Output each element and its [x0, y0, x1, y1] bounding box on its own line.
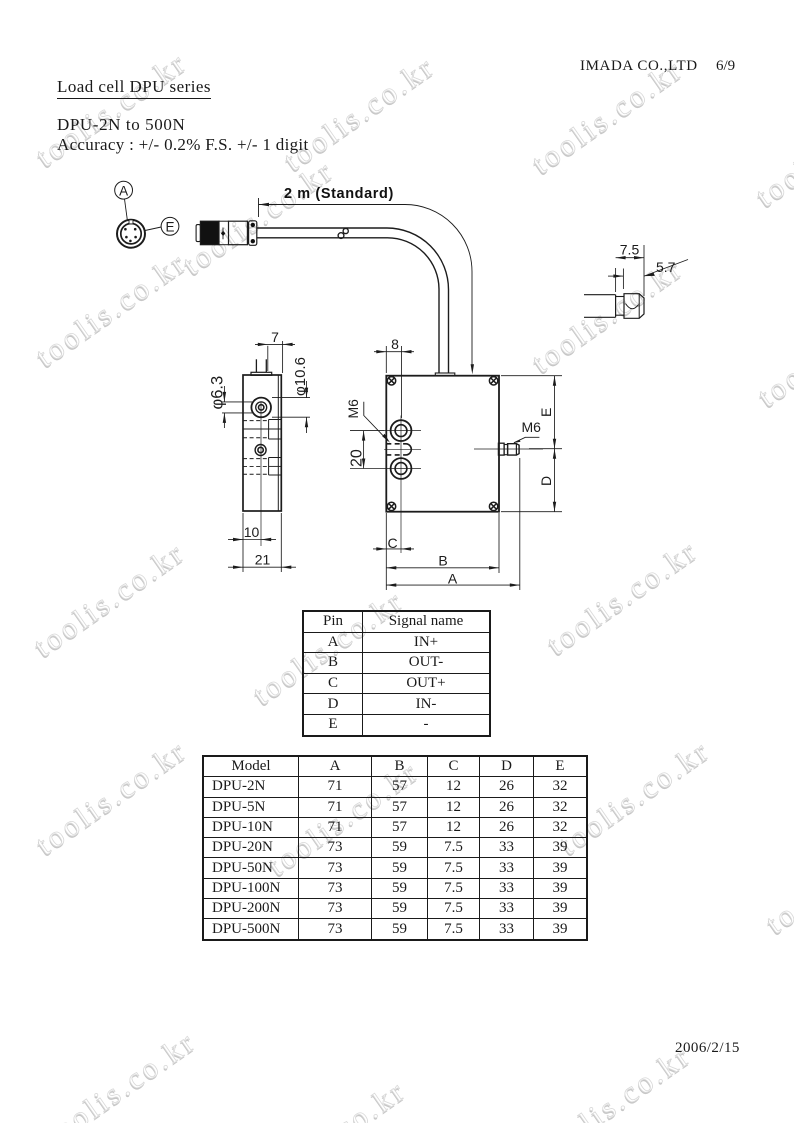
svg-text:toolis.co.kr: toolis.co.kr — [249, 1075, 410, 1123]
svg-text:5.7: 5.7 — [656, 259, 676, 275]
svg-text:20: 20 — [349, 449, 366, 467]
svg-text:7: 7 — [271, 329, 279, 345]
svg-text:D: D — [538, 476, 554, 486]
svg-text:2 m (Standard): 2 m (Standard) — [284, 186, 394, 202]
svg-text:toolis.co.kr: toolis.co.kr — [28, 537, 189, 663]
svg-text:M6: M6 — [522, 419, 542, 435]
svg-text:toolis.co.kr: toolis.co.kr — [177, 155, 338, 281]
svg-text:φ10.6: φ10.6 — [292, 357, 309, 396]
svg-text:toolis.co.kr: toolis.co.kr — [541, 535, 702, 661]
svg-text:A: A — [448, 571, 458, 587]
svg-text:toolis.co.kr: toolis.co.kr — [278, 51, 439, 177]
svg-text:M6: M6 — [345, 399, 361, 419]
svg-text:toolis.co.kr: toolis.co.kr — [750, 87, 794, 213]
svg-text:toolis.co.kr: toolis.co.kr — [30, 247, 191, 373]
svg-text:toolis.co.kr: toolis.co.kr — [752, 287, 794, 413]
svg-text:E: E — [165, 220, 174, 235]
svg-text:C: C — [387, 535, 397, 551]
svg-text:21: 21 — [255, 552, 271, 568]
svg-text:B: B — [438, 553, 447, 569]
svg-text:toolis.co.kr: toolis.co.kr — [30, 735, 191, 861]
svg-text:A: A — [119, 184, 128, 199]
svg-text:10: 10 — [244, 524, 260, 540]
svg-text:φ6.3: φ6.3 — [209, 376, 227, 410]
svg-text:8: 8 — [391, 336, 399, 352]
svg-text:E: E — [538, 408, 554, 417]
svg-text:7.5: 7.5 — [620, 242, 640, 258]
svg-text:toolis.co.kr: toolis.co.kr — [760, 814, 794, 940]
svg-text:toolis.co.kr: toolis.co.kr — [39, 1026, 200, 1123]
